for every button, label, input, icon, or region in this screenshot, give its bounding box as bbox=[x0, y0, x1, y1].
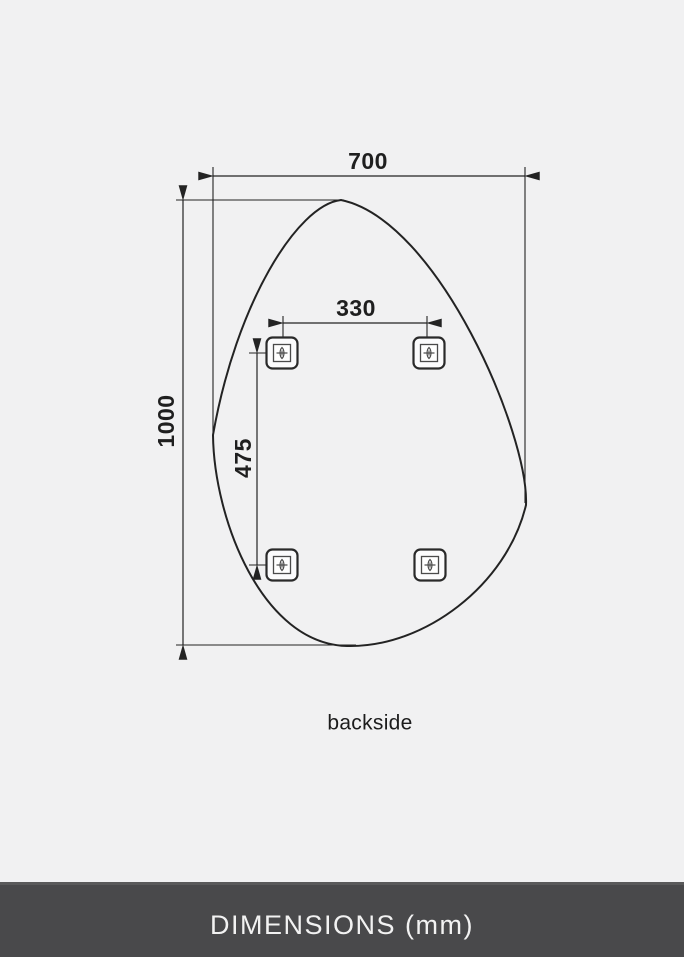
dimension-bracket-spacing-horizontal-label: 330 bbox=[336, 295, 376, 321]
footer-title: DIMENSIONS (mm) bbox=[210, 910, 474, 941]
mounting-bracket-screw-icon-top-left bbox=[267, 338, 298, 369]
dimension-width: 700 bbox=[213, 148, 525, 503]
mounting-bracket-screw-icon-bottom-right bbox=[415, 550, 446, 581]
dimension-bracket-spacing-vertical-label: 475 bbox=[230, 438, 256, 478]
product-dimension-image: 700 1000 330 475 backside bbox=[0, 0, 684, 957]
dimension-bracket-spacing-horizontal: 330 bbox=[283, 295, 427, 338]
dimension-width-label: 700 bbox=[348, 148, 388, 174]
backside-caption: backside bbox=[327, 712, 412, 735]
dimension-diagram: 700 1000 330 475 backside bbox=[0, 0, 684, 882]
mounting-bracket-screw-icon-bottom-left bbox=[267, 550, 298, 581]
dimension-bracket-spacing-vertical: 475 bbox=[230, 353, 266, 565]
dimension-height: 1000 bbox=[153, 200, 356, 645]
dimensions-footer-bar: DIMENSIONS (mm) bbox=[0, 882, 684, 957]
mirror-outline bbox=[213, 200, 526, 646]
mounting-bracket-screw-icon-top-right bbox=[414, 338, 445, 369]
dimension-height-label: 1000 bbox=[153, 394, 179, 447]
